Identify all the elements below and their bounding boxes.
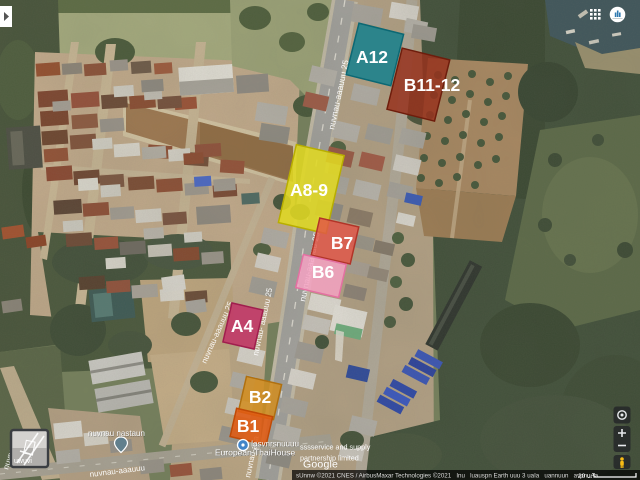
- svg-text:A8-9: A8-9: [290, 180, 328, 200]
- svg-text:sssservice and supply: sssservice and supply: [300, 443, 371, 452]
- svg-text:uwuvi: uwuvi: [14, 458, 32, 465]
- svg-text:A12: A12: [356, 47, 388, 67]
- svg-text:B11-12: B11-12: [404, 75, 461, 95]
- svg-text:B7: B7: [331, 233, 353, 253]
- svg-text:nuvnau nastaun: nuvnau nastaun: [88, 429, 145, 438]
- svg-text:B1: B1: [237, 416, 260, 436]
- svg-text:Google: Google: [303, 459, 338, 471]
- svg-text:B2: B2: [249, 387, 272, 407]
- svg-text:B6: B6: [312, 262, 335, 282]
- svg-text:European ThaiHouse: European ThaiHouse: [215, 448, 295, 458]
- svg-text:20 u.: 20 u.: [578, 473, 593, 480]
- svg-text:sUnnw ©2021 CNES / AirbusMaxar: sUnnw ©2021 CNES / AirbusMaxar Technolog…: [296, 473, 599, 480]
- svg-text:A4: A4: [231, 316, 254, 336]
